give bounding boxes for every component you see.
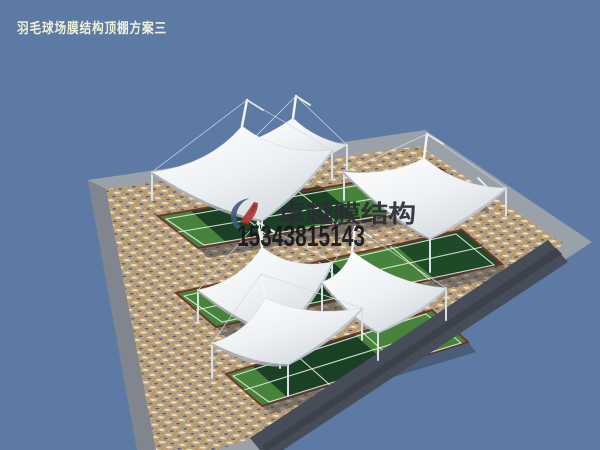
scheme-title: 羽毛球场膜结构顶棚方案三 [17,20,167,36]
watermark-phone-text: 15343815143 [237,220,365,253]
membrane-structure-render: 卓越膜结构 15343815143 羽毛球场膜结构顶棚方案三 [0,0,600,450]
render-viewport: 卓越膜结构 15343815143 羽毛球场膜结构顶棚方案三 [0,0,600,450]
